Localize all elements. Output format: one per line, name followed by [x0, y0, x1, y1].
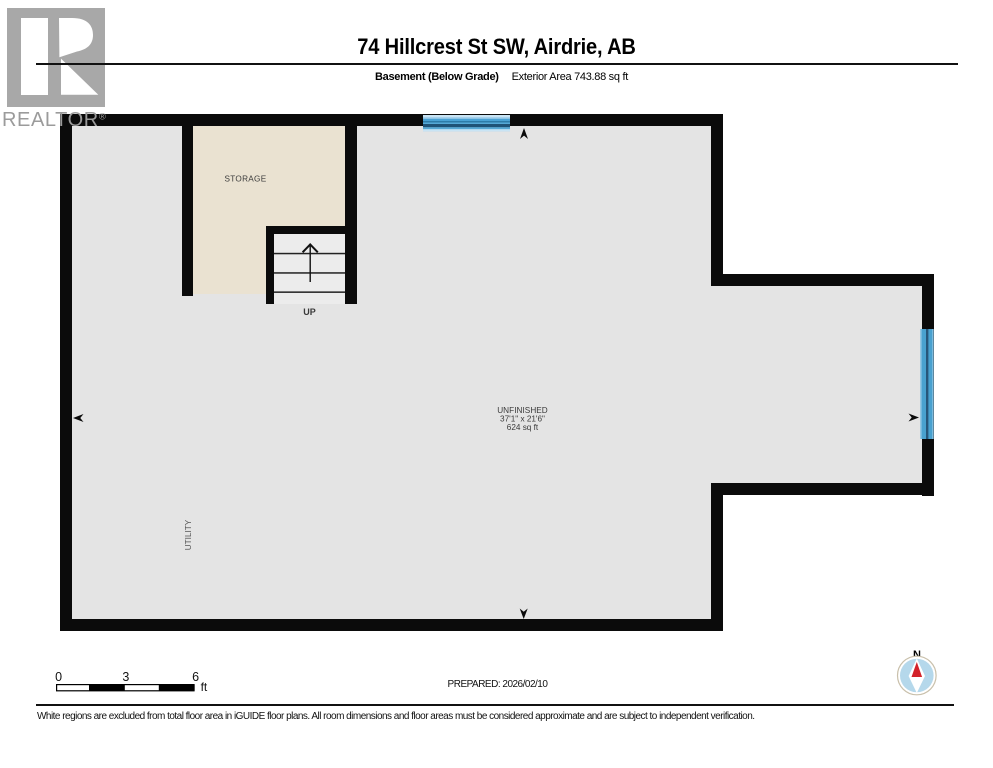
- svg-text:624 sq ft: 624 sq ft: [507, 423, 539, 432]
- svg-text:STORAGE: STORAGE: [225, 175, 267, 184]
- svg-text:UTILITY: UTILITY: [184, 519, 193, 550]
- svg-text:UP: UP: [303, 307, 316, 317]
